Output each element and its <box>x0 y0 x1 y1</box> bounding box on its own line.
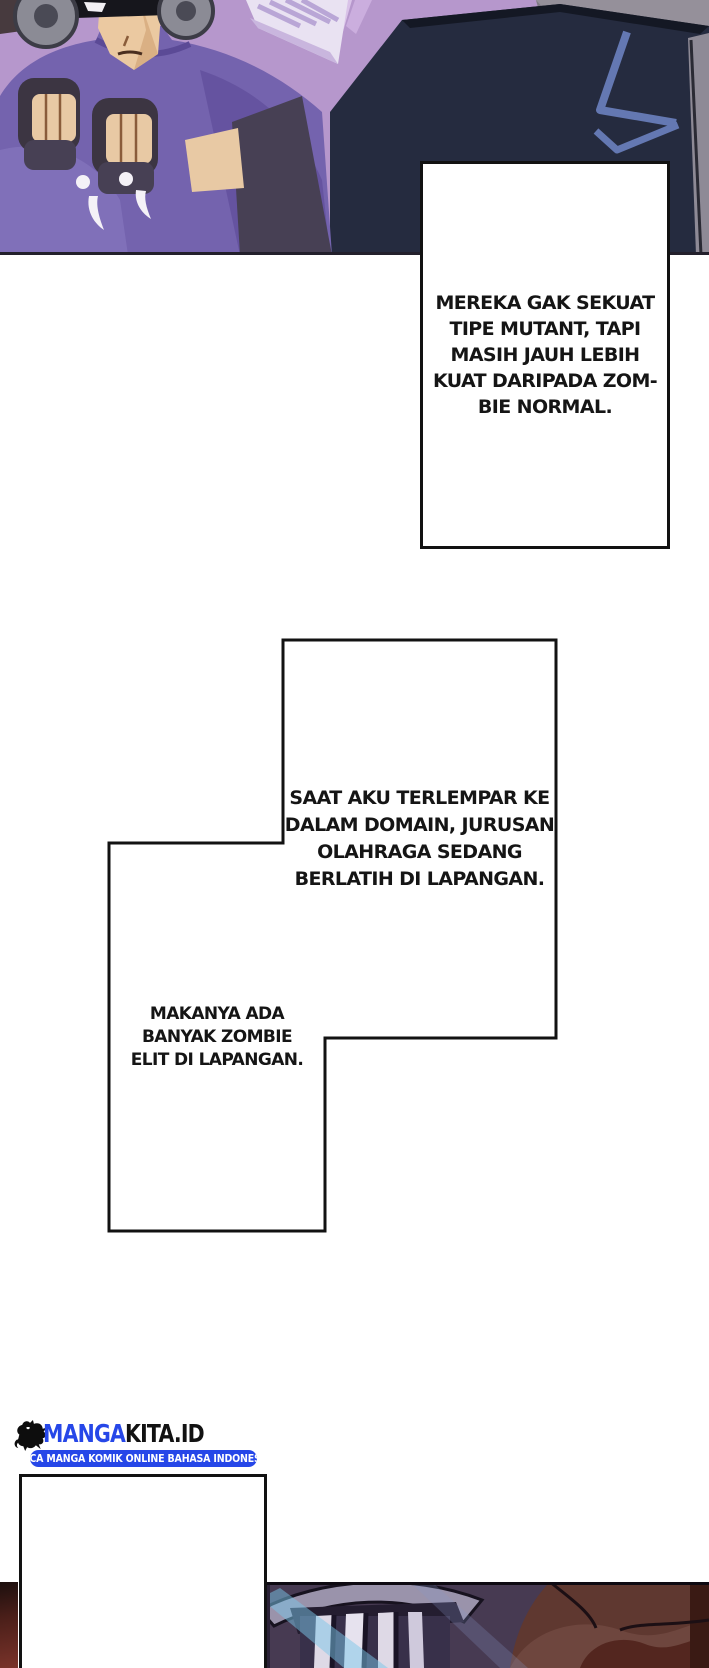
speech-bubble-4 <box>19 1474 267 1668</box>
brand-secondary-text: KITA.ID <box>125 1419 204 1448</box>
speech-bubble-1-text: MEREKA GAK SEKUAT TIPE MUTANT, TAPI MASI… <box>420 161 670 549</box>
site-watermark: MANGAKITA.ID BACA MANGA KOMIK ONLINE BAH… <box>13 1417 273 1469</box>
brand-tagline-pill: BACA MANGA KOMIK ONLINE BAHASA INDONESIA <box>30 1450 257 1467</box>
panel-bottom-left-strip <box>0 1582 18 1668</box>
brand-tagline-text: BACA MANGA KOMIK ONLINE BAHASA INDONESIA <box>30 1453 257 1465</box>
panel-bottom-artwork <box>260 1582 709 1668</box>
brand-wordmark: MANGAKITA.ID <box>43 1417 204 1449</box>
comic-page: MEREKA GAK SEKUAT TIPE MUTANT, TAPI MASI… <box>0 0 709 1668</box>
brand-primary-text: MANGA <box>43 1419 125 1448</box>
speech-bubble-3-text: MAKANYA ADA BANYAK ZOMBIE ELIT DI LAPANG… <box>109 843 325 1231</box>
